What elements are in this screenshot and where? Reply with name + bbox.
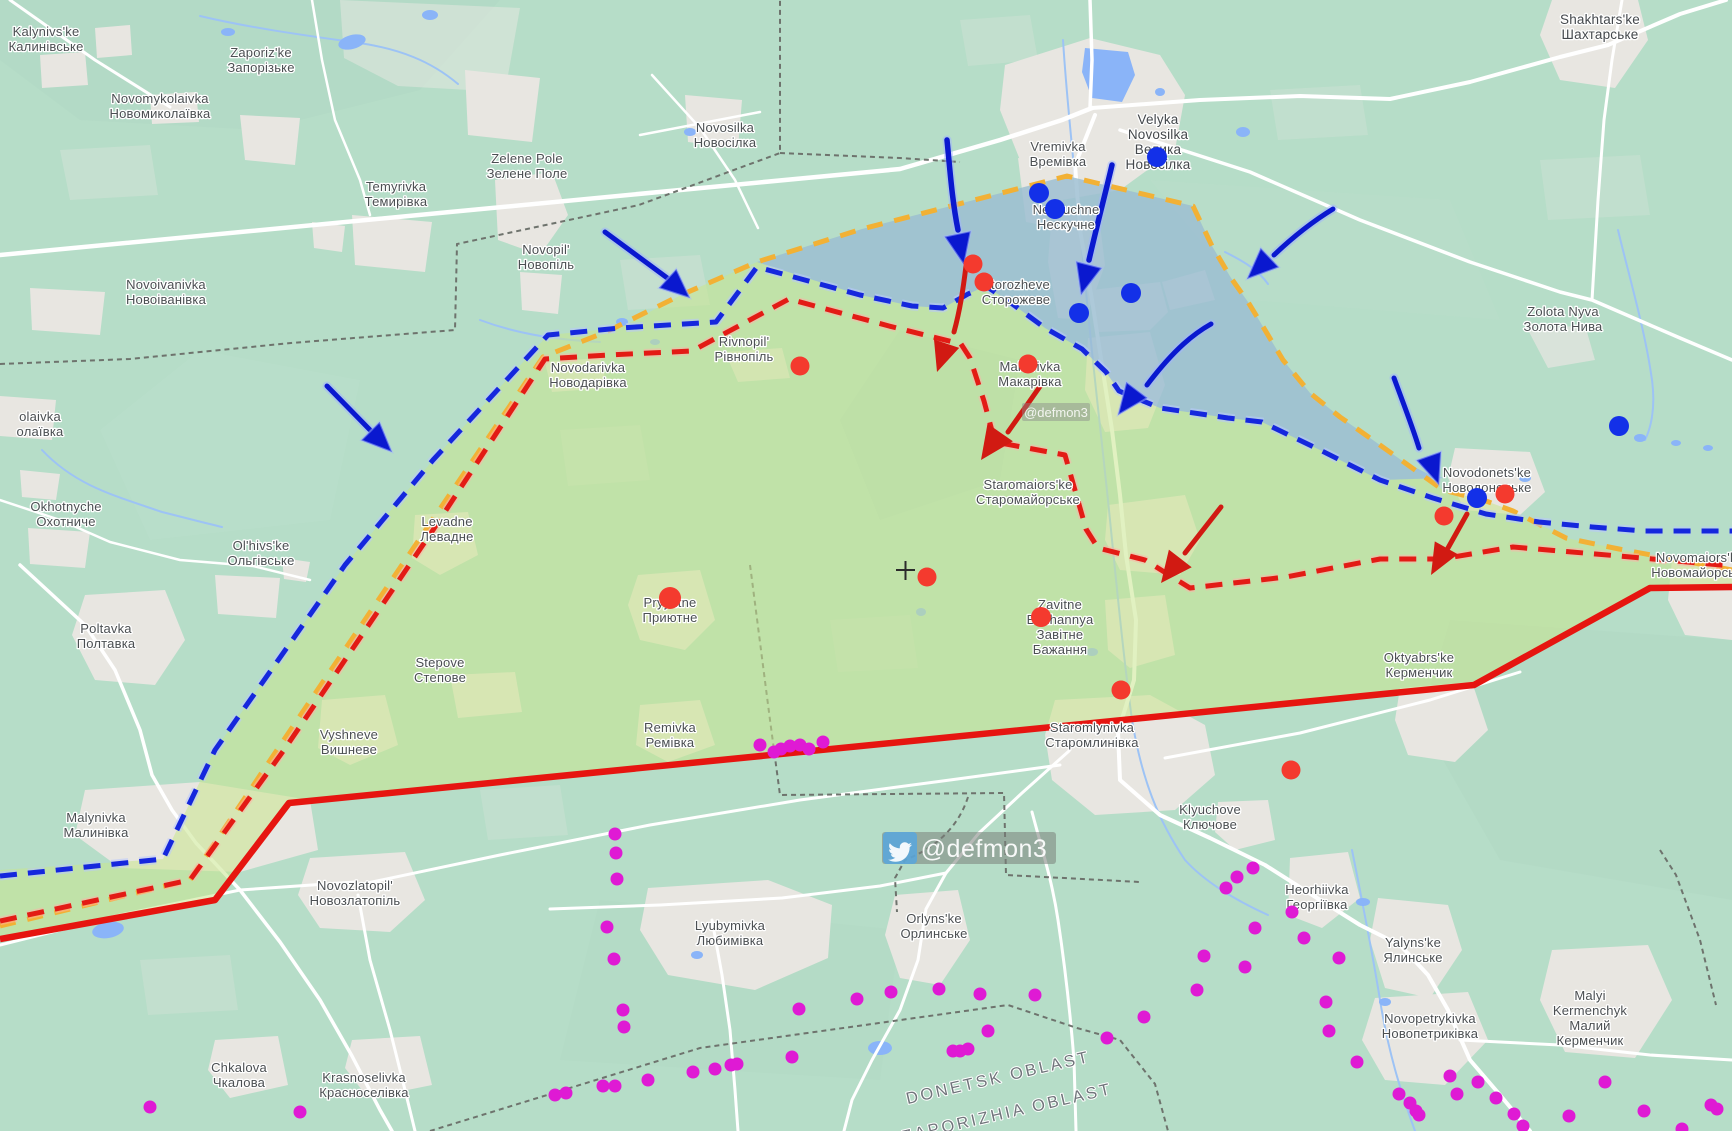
svg-text:Novodarivka: Novodarivka	[551, 360, 626, 375]
svg-text:Orlyns'ke: Orlyns'ke	[906, 911, 962, 926]
svg-text:Zolota Nyva: Zolota Nyva	[1527, 304, 1599, 319]
svg-text:Охотниче: Охотниче	[36, 514, 95, 529]
svg-text:Klyuchove: Klyuchove	[1179, 802, 1241, 817]
svg-text:Чкалова: Чкалова	[213, 1075, 266, 1090]
svg-text:Керменчик: Керменчик	[1386, 665, 1453, 680]
svg-text:Okhotnyche: Okhotnyche	[30, 499, 101, 514]
svg-text:Новодонецьке: Новодонецьке	[1442, 480, 1531, 495]
svg-text:Neskuchne: Neskuchne	[1033, 202, 1100, 217]
svg-text:Золота Нива: Золота Нива	[1524, 319, 1604, 334]
svg-text:Chkalova: Chkalova	[211, 1060, 267, 1075]
svg-text:Вишневе: Вишневе	[321, 742, 377, 757]
svg-text:Новоіванівка: Новоіванівка	[126, 292, 207, 307]
svg-text:Novomykolaivka: Novomykolaivka	[111, 91, 209, 106]
svg-text:Novopil': Novopil'	[522, 242, 569, 257]
svg-text:@defmon3: @defmon3	[1024, 405, 1088, 420]
svg-text:Старомайорське: Старомайорське	[976, 492, 1080, 507]
svg-text:Novozlatopil': Novozlatopil'	[317, 878, 393, 893]
svg-text:Новомайорське: Новомайорське	[1651, 565, 1732, 580]
svg-text:Vremivka: Vremivka	[1030, 139, 1086, 154]
svg-text:Ремівка: Ремівка	[646, 735, 695, 750]
svg-text:Орлинське: Орлинське	[900, 926, 967, 941]
svg-text:Shakhtars'ke: Shakhtars'ke	[1560, 12, 1640, 27]
svg-text:Novopetrykivka: Novopetrykivka	[1384, 1011, 1476, 1026]
svg-text:Ялинське: Ялинське	[1383, 950, 1442, 965]
svg-text:Ключове: Ключове	[1183, 817, 1237, 832]
svg-text:Stepove: Stepove	[415, 655, 464, 670]
svg-text:olaivka: olaivka	[19, 409, 61, 424]
svg-text:Любимівка: Любимівка	[697, 933, 764, 948]
svg-text:Левадне: Левадне	[420, 529, 473, 544]
svg-text:Новодарівка: Новодарівка	[549, 375, 627, 390]
svg-text:Levadne: Levadne	[421, 514, 472, 529]
svg-text:Poltavka: Poltavka	[80, 621, 132, 636]
svg-text:Malyi: Malyi	[1574, 988, 1605, 1003]
svg-text:Малий: Малий	[1569, 1018, 1610, 1033]
svg-text:Oktyabrs'ke: Oktyabrs'ke	[1384, 650, 1454, 665]
svg-text:Temyrivka: Temyrivka	[366, 179, 427, 194]
svg-text:Velyka: Velyka	[1138, 112, 1179, 127]
svg-text:Приютне: Приютне	[642, 610, 697, 625]
svg-text:Krasnoselivka: Krasnoselivka	[322, 1070, 406, 1085]
svg-text:Staromaiors'ke: Staromaiors'ke	[983, 477, 1072, 492]
svg-text:Степове: Степове	[414, 670, 466, 685]
svg-text:Remivka: Remivka	[644, 720, 697, 735]
svg-text:Novoivanivka: Novoivanivka	[126, 277, 206, 292]
svg-text:Novodonets'ke: Novodonets'ke	[1443, 465, 1531, 480]
svg-text:@defmon3: @defmon3	[921, 835, 1048, 863]
svg-text:Новопіль: Новопіль	[518, 257, 575, 272]
svg-text:Сторожеве: Сторожеве	[982, 292, 1050, 307]
svg-text:Макарівка: Макарівка	[998, 374, 1062, 389]
svg-text:Vyshneve: Vyshneve	[320, 727, 378, 742]
svg-text:Старомлинівка: Старомлинівка	[1045, 735, 1139, 750]
svg-text:Zaporiz'ke: Zaporiz'ke	[230, 45, 292, 60]
svg-text:Рівнопіль: Рівнопіль	[715, 349, 774, 364]
svg-text:Kalynivs'ke: Kalynivs'ke	[13, 24, 80, 39]
svg-text:Kermenchyk: Kermenchyk	[1553, 1003, 1628, 1018]
svg-text:Rivnopil': Rivnopil'	[719, 334, 770, 349]
svg-text:Ольгівське: Ольгівське	[227, 553, 294, 568]
svg-text:Запорізьке: Запорізьке	[227, 60, 294, 75]
svg-text:Novosilka: Novosilka	[1128, 127, 1189, 142]
svg-text:Malynivka: Malynivka	[66, 810, 126, 825]
svg-text:Staromlynivka: Staromlynivka	[1050, 720, 1135, 735]
svg-text:Красноселівка: Красноселівка	[319, 1085, 409, 1100]
svg-text:Новомиколаївка: Новомиколаївка	[110, 106, 211, 121]
svg-text:Завітне: Завітне	[1037, 627, 1084, 642]
svg-text:Малинівка: Малинівка	[63, 825, 129, 840]
svg-text:Полтавка: Полтавка	[77, 636, 136, 651]
svg-text:Novomaiors'ke: Novomaiors'ke	[1656, 550, 1732, 565]
svg-text:Новозлатопіль: Новозлатопіль	[310, 893, 401, 908]
svg-text:Novosilka: Novosilka	[696, 120, 755, 135]
svg-text:Новопетриківка: Новопетриківка	[1382, 1026, 1479, 1041]
svg-text:Времівка: Времівка	[1030, 154, 1087, 169]
svg-text:Темирівка: Темирівка	[365, 194, 428, 209]
svg-text:Шахтарське: Шахтарське	[1562, 27, 1639, 42]
svg-text:Zelene Pole: Zelene Pole	[491, 151, 563, 166]
svg-text:Heorhiivka: Heorhiivka	[1285, 882, 1349, 897]
svg-text:Калинівське: Калинівське	[8, 39, 83, 54]
svg-text:Бажання: Бажання	[1033, 642, 1088, 657]
svg-text:олаївка: олаївка	[17, 424, 64, 439]
svg-text:Новосілка: Новосілка	[694, 135, 757, 150]
svg-text:Керменчик: Керменчик	[1557, 1033, 1624, 1048]
svg-text:Yalyns'ke: Yalyns'ke	[1385, 935, 1441, 950]
svg-text:Зелене Поле: Зелене Поле	[487, 166, 568, 181]
svg-text:Lyubymivka: Lyubymivka	[695, 918, 766, 933]
svg-text:Ol'hivs'ke: Ol'hivs'ke	[233, 538, 290, 553]
svg-text:Нескучне: Нескучне	[1037, 217, 1095, 232]
